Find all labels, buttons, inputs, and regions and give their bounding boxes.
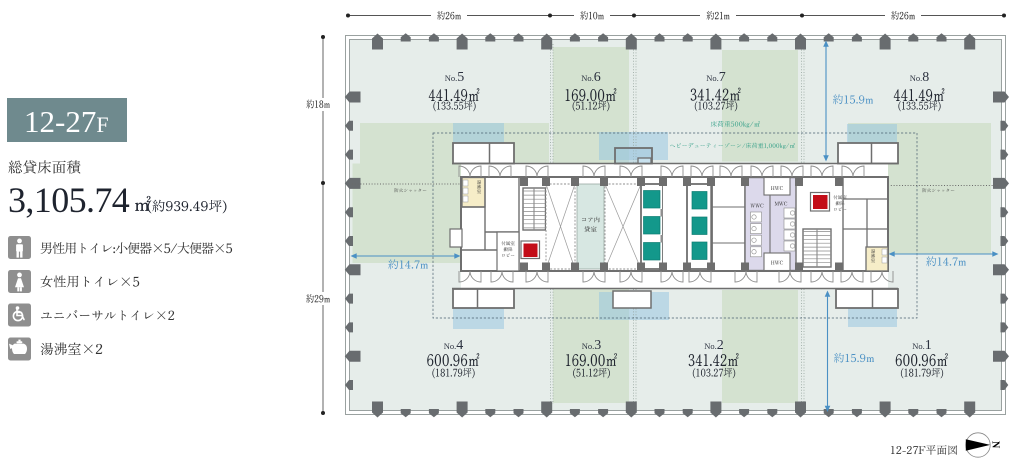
svg-text:No.4: No.4	[444, 338, 464, 353]
svg-text:No.1: No.1	[912, 338, 932, 353]
svg-text:No.8: No.8	[910, 70, 930, 85]
svg-text:No.2: No.2	[704, 338, 724, 353]
svg-text:No.3: No.3	[582, 338, 602, 353]
svg-text:3,105.74: 3,105.74	[8, 180, 130, 220]
svg-text:12-27F: 12-27F	[24, 104, 109, 139]
svg-text:No.5: No.5	[445, 70, 465, 85]
svg-text:N: N	[990, 441, 1001, 449]
svg-text:No.6: No.6	[581, 70, 601, 85]
svg-text:No.7: No.7	[706, 70, 726, 85]
